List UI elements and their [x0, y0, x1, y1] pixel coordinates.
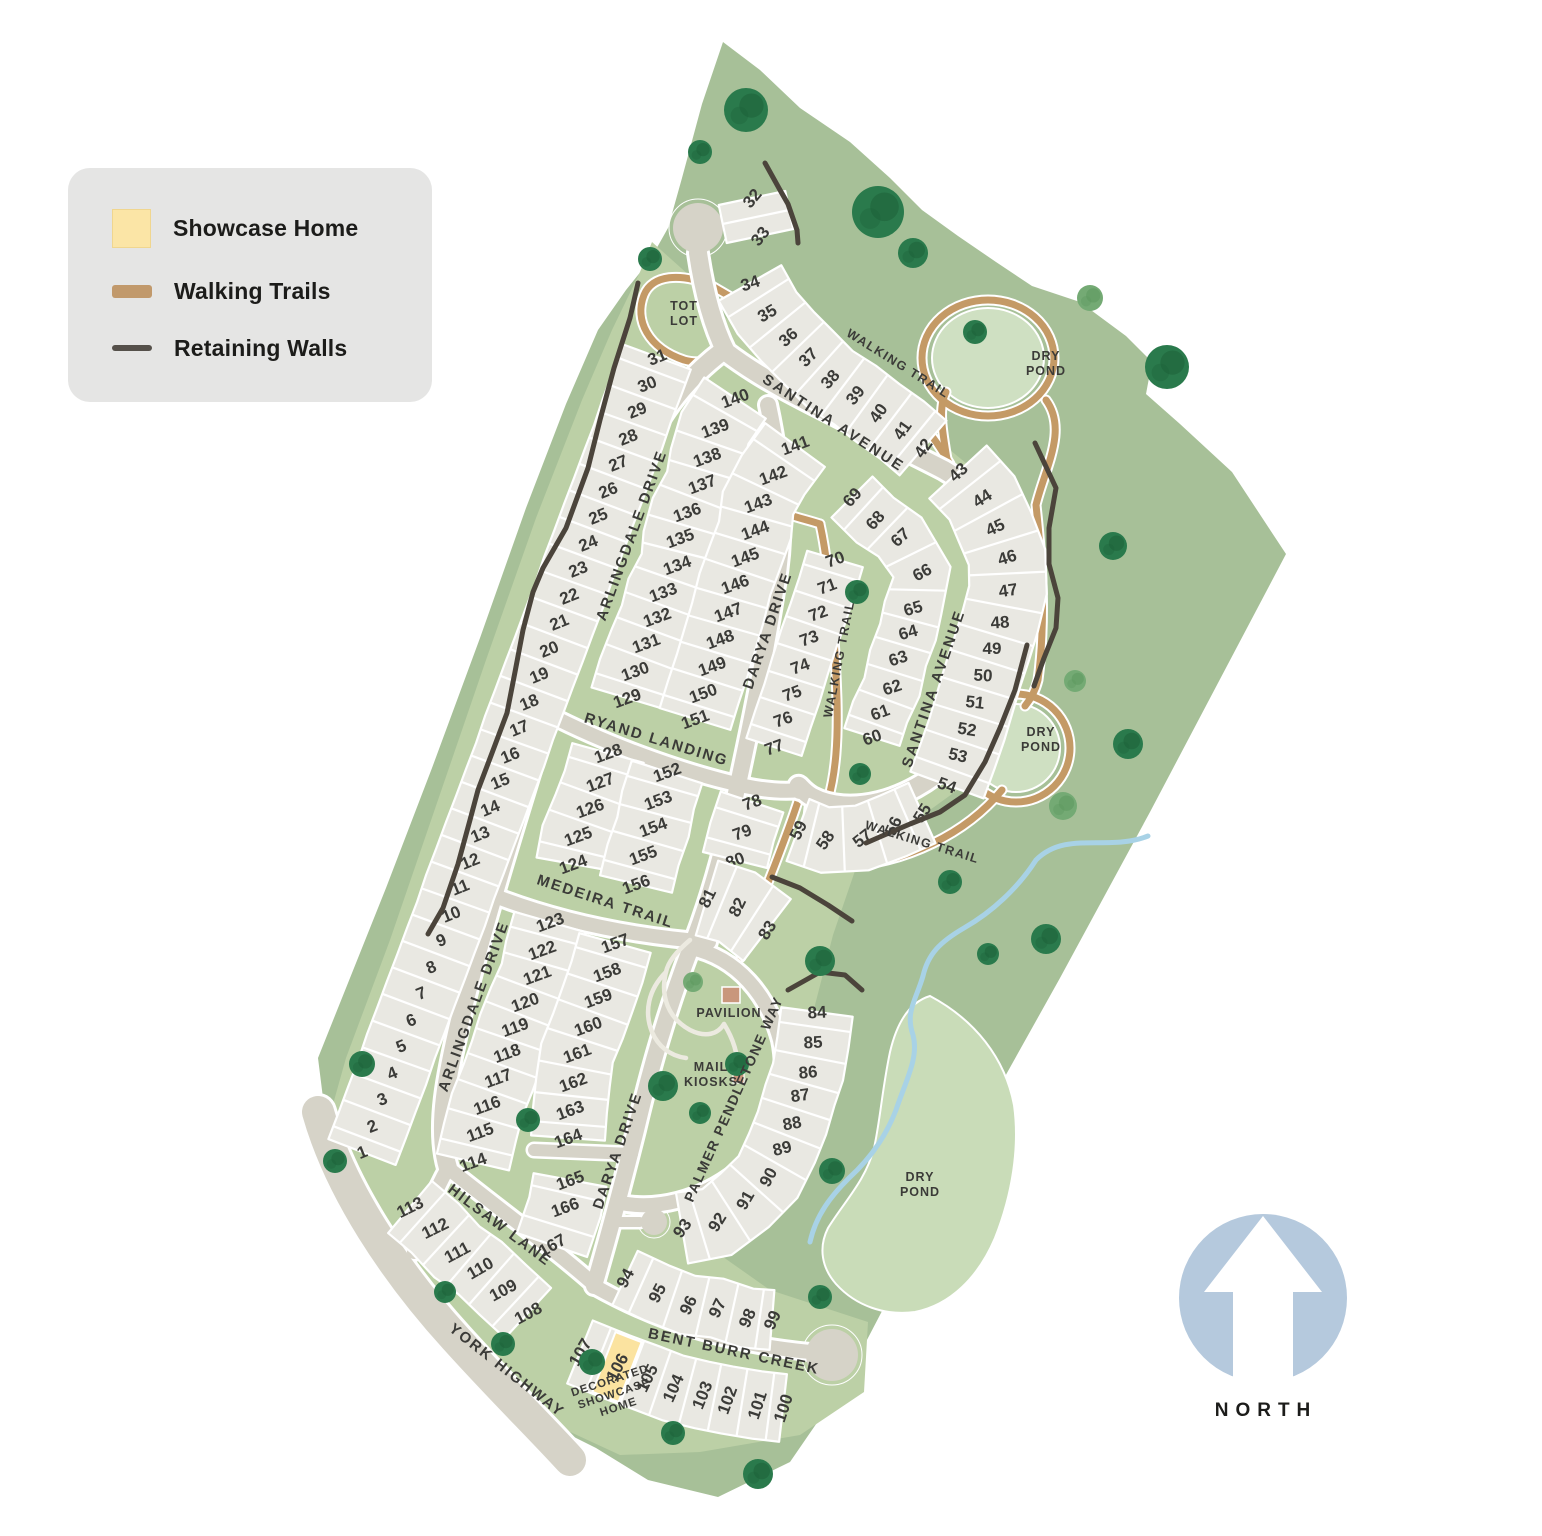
- tree-icon: [1031, 924, 1061, 954]
- tree-icon: [638, 247, 662, 271]
- legend-item-walking-trails: Walking Trails: [112, 278, 432, 305]
- tree-icon: [1077, 285, 1103, 311]
- svg-text:POND: POND: [1021, 740, 1061, 754]
- tree-icon: [1113, 729, 1143, 759]
- legend-label: Showcase Home: [173, 215, 358, 242]
- tree-icon: [743, 1459, 773, 1489]
- tree-icon: [808, 1285, 832, 1309]
- svg-text:PAVILION: PAVILION: [696, 1006, 761, 1020]
- tree-icon: [977, 943, 999, 965]
- tree-icon: [434, 1281, 456, 1303]
- lot-number-48: 48: [990, 612, 1010, 632]
- tree-icon: [323, 1149, 347, 1173]
- lot-number-50: 50: [973, 665, 993, 685]
- tree-icon: [1049, 792, 1077, 820]
- tree-icon: [349, 1051, 375, 1077]
- svg-text:DRY: DRY: [906, 1170, 935, 1184]
- svg-text:LOT: LOT: [670, 314, 698, 328]
- north-label: NORTH: [1215, 1400, 1318, 1421]
- tree-icon: [689, 1102, 711, 1124]
- lot-number-88: 88: [781, 1112, 803, 1134]
- legend: Showcase Home Walking Trails Retaining W…: [68, 168, 432, 402]
- area-label-tot-lot: TOTLOT: [670, 299, 698, 328]
- svg-text:MAIL: MAIL: [694, 1060, 729, 1074]
- tree-icon: [683, 972, 703, 992]
- lot-number-51: 51: [965, 692, 986, 713]
- lot-number-52: 52: [956, 719, 978, 741]
- svg-text:TOT: TOT: [670, 299, 698, 313]
- tree-icon: [1064, 670, 1086, 692]
- svg-text:DRY: DRY: [1032, 349, 1061, 363]
- tree-icon: [579, 1349, 605, 1375]
- tree-icon: [648, 1071, 678, 1101]
- tree-icon: [661, 1421, 685, 1445]
- tree-icon: [516, 1108, 540, 1132]
- site-plan-page: 1234567891011121314151617181920212223242…: [0, 0, 1542, 1536]
- tree-icon: [852, 186, 904, 238]
- legend-item-retaining-walls: Retaining Walls: [112, 335, 432, 362]
- pavilion-structure: [722, 987, 740, 1003]
- svg-text:POND: POND: [1026, 364, 1066, 378]
- svg-text:POND: POND: [900, 1185, 940, 1199]
- area-label-dry-pond: DRYPOND: [900, 1170, 940, 1199]
- north-arrow: NORTH: [1179, 1214, 1347, 1421]
- tree-icon: [1099, 532, 1127, 560]
- svg-text:KIOSKS: KIOSKS: [684, 1075, 738, 1089]
- tree-icon: [963, 320, 987, 344]
- lot-number-87: 87: [789, 1085, 810, 1106]
- tree-icon: [819, 1158, 845, 1184]
- lot-number-49: 49: [983, 639, 1002, 658]
- tree-icon: [805, 946, 835, 976]
- tree-icon: [845, 580, 869, 604]
- cul-de-sac-small: [641, 1209, 667, 1235]
- lot-number-47: 47: [997, 580, 1018, 601]
- cul-de-sac-north: [673, 203, 723, 253]
- tree-icon: [688, 140, 712, 164]
- walking-trails-swatch-icon: [112, 285, 152, 298]
- svg-text:DRY: DRY: [1027, 725, 1056, 739]
- legend-item-showcase-home: Showcase Home: [112, 209, 432, 248]
- tree-icon: [724, 88, 768, 132]
- tree-icon: [938, 870, 962, 894]
- lot-separator: [889, 589, 947, 590]
- lot-number-85: 85: [803, 1032, 823, 1052]
- area-label-dry-pond: DRYPOND: [1026, 349, 1066, 378]
- area-label-pavilion: PAVILION: [696, 1006, 761, 1020]
- tree-icon: [1145, 345, 1189, 389]
- lot-number-84: 84: [807, 1002, 827, 1022]
- area-label-dry-pond: DRYPOND: [1021, 725, 1061, 754]
- retaining-walls-swatch-icon: [112, 345, 152, 351]
- legend-label: Retaining Walls: [174, 335, 347, 362]
- lot-number-86: 86: [798, 1062, 819, 1083]
- legend-label: Walking Trails: [174, 278, 331, 305]
- tree-icon: [849, 763, 871, 785]
- showcase-home-swatch-icon: [112, 209, 151, 248]
- tree-icon: [898, 238, 928, 268]
